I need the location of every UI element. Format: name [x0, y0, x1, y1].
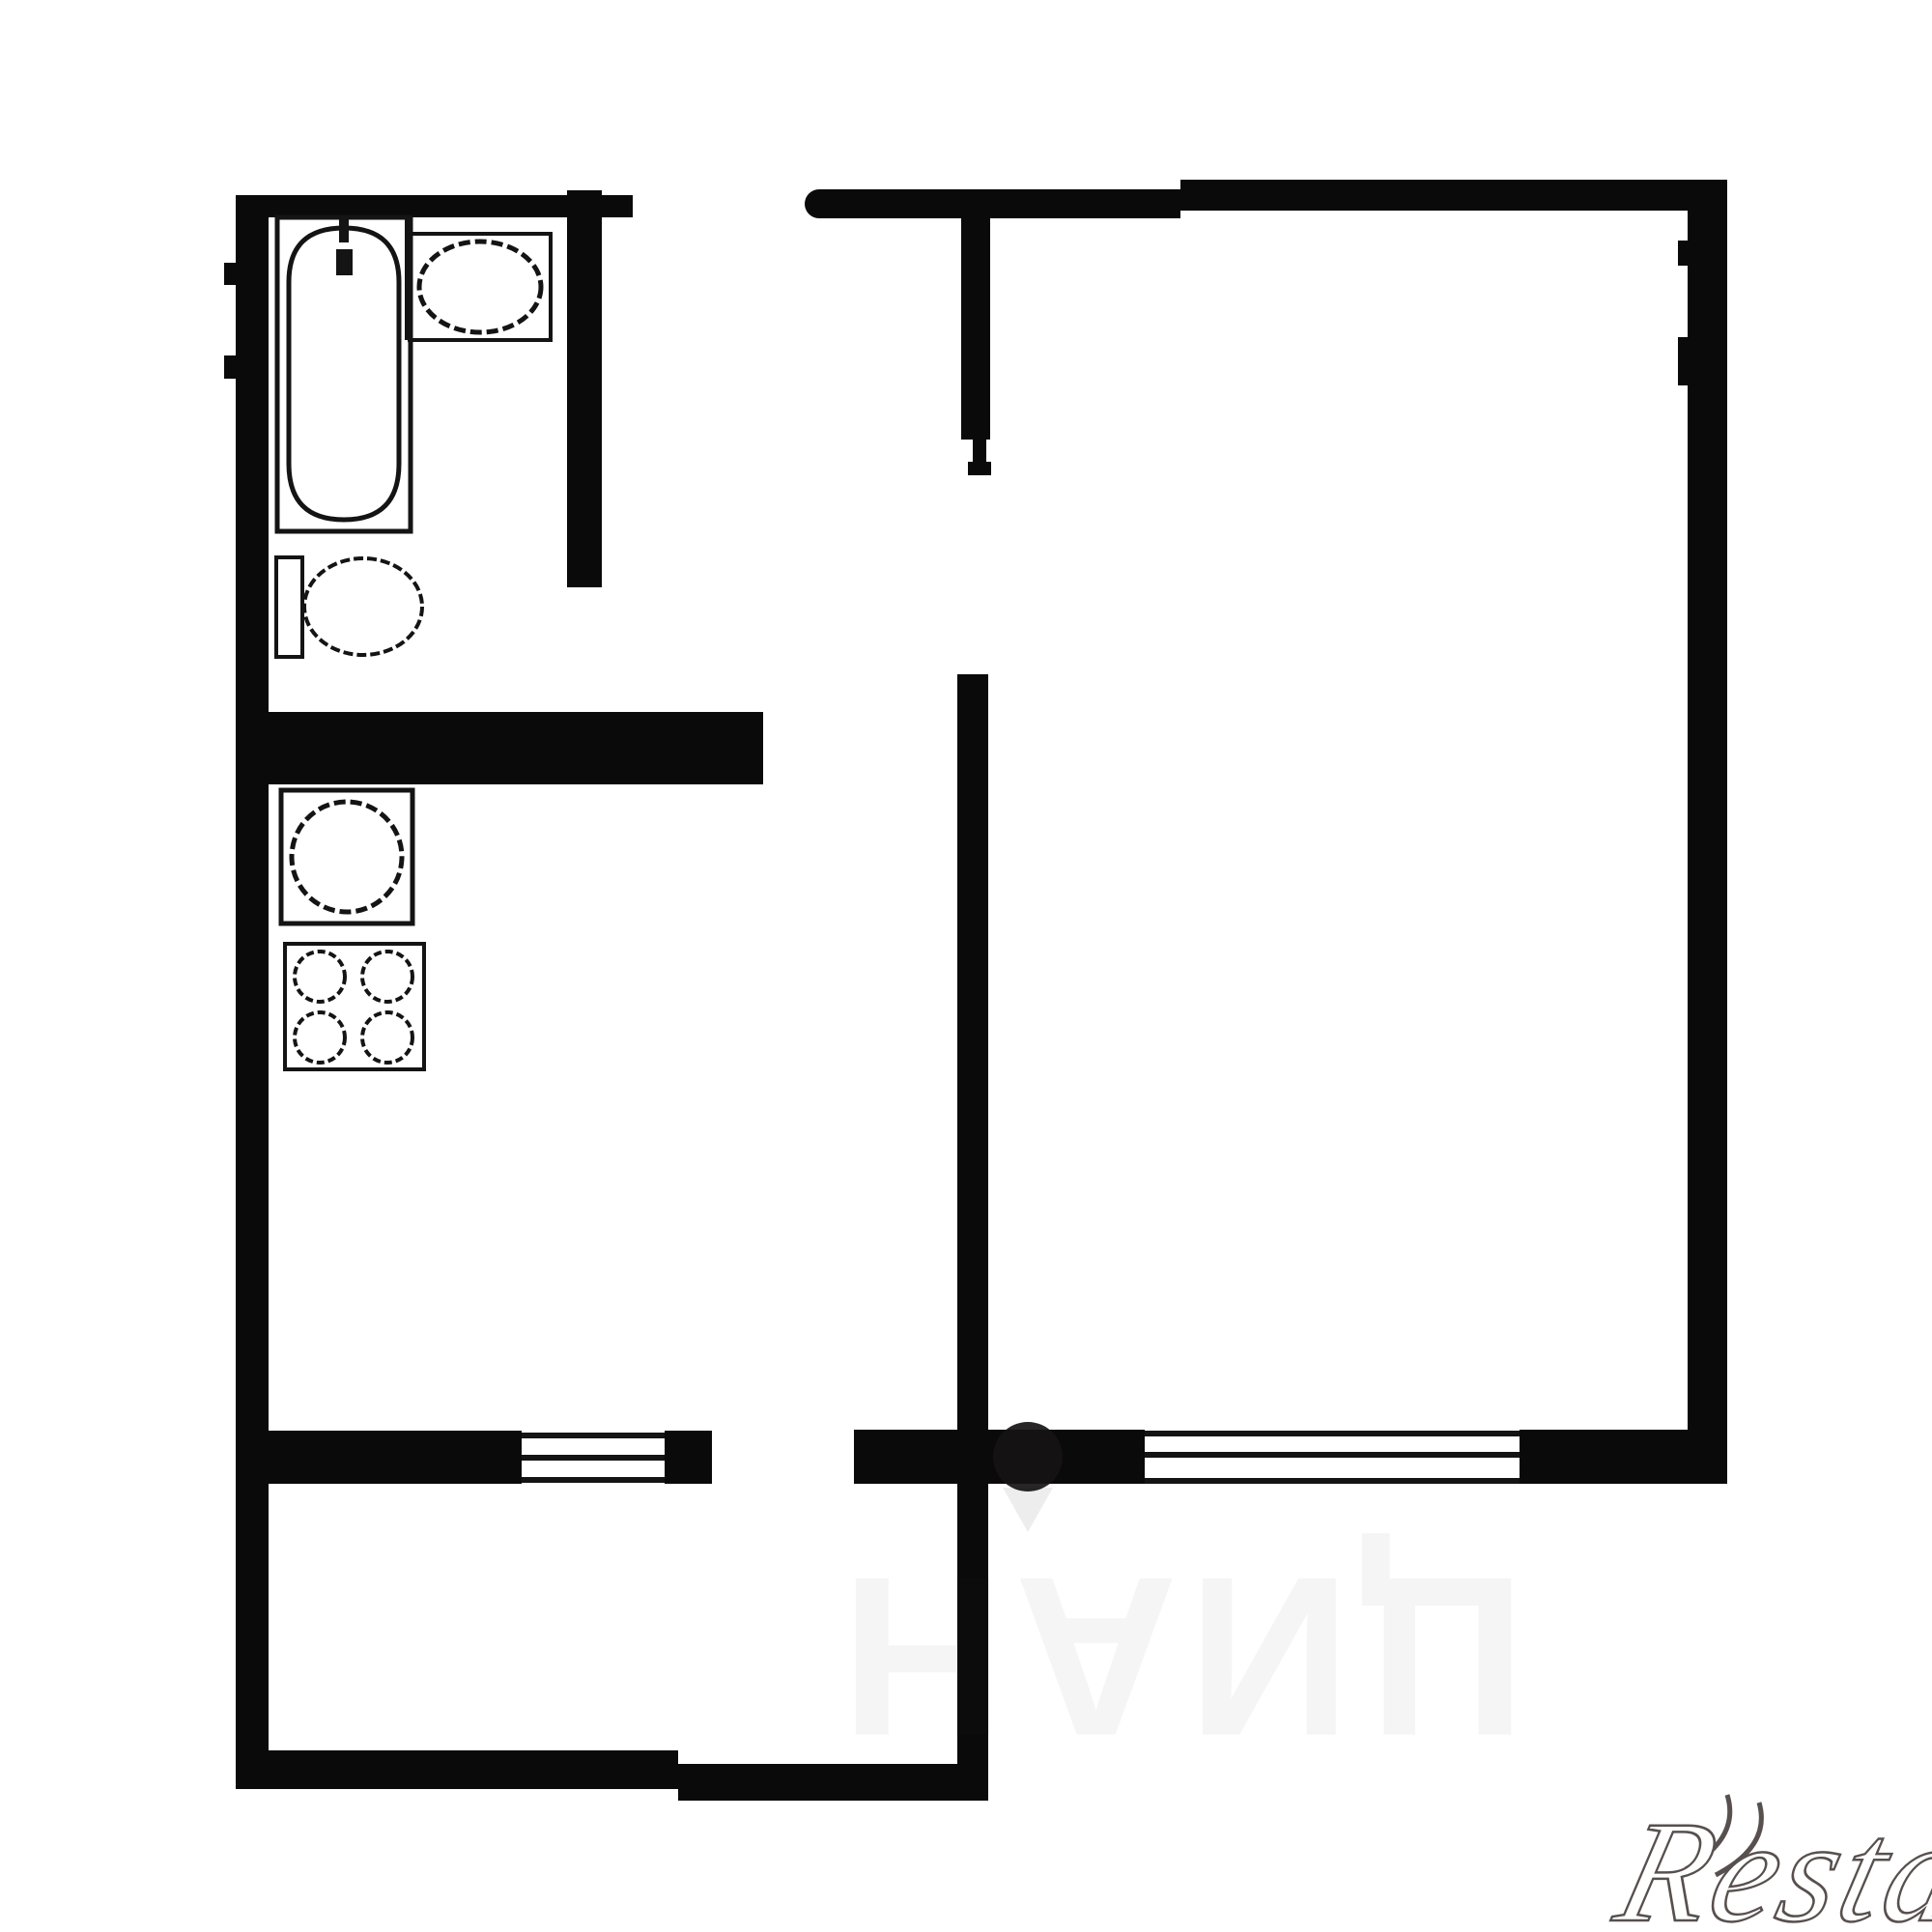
floor-plan: ЦИАН Restate: [0, 0, 1932, 1932]
brand-watermark: Restate: [0, 0, 1932, 1932]
brand-watermark-text: Restate: [1603, 1791, 1932, 1932]
